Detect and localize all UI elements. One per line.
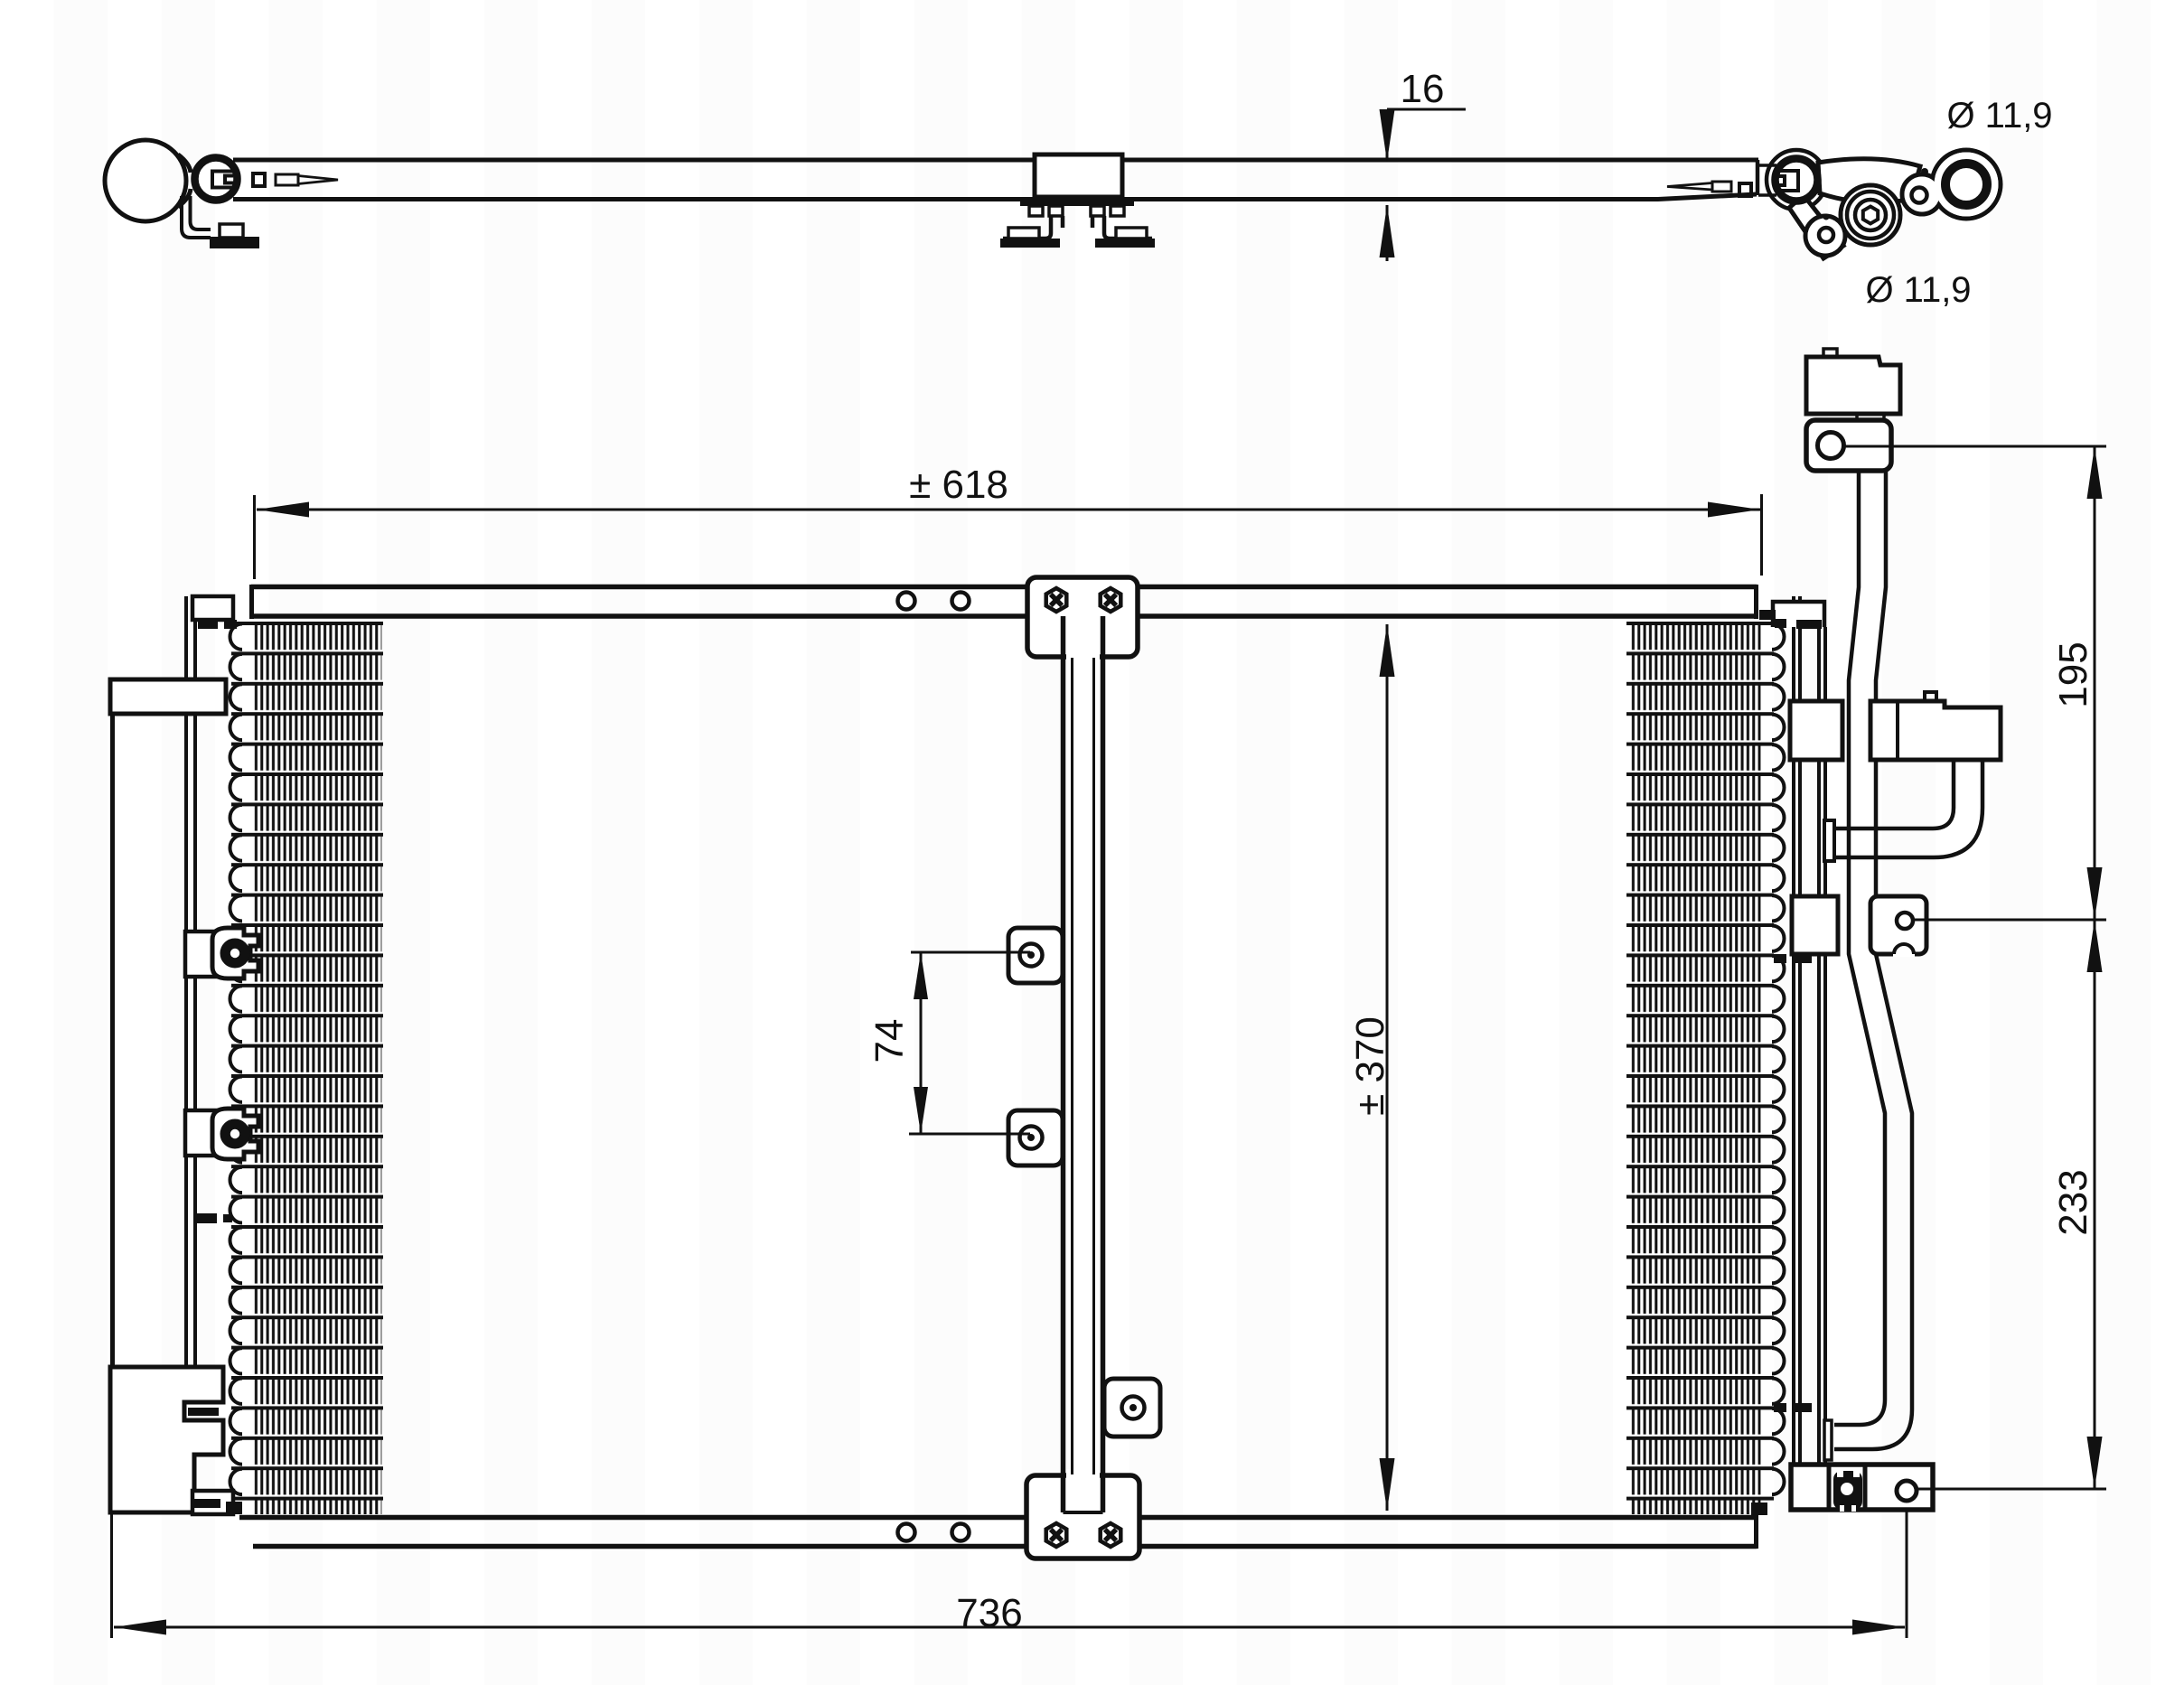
svg-text:± 370: ± 370 — [1348, 1016, 1392, 1116]
svg-text:Ø 11,9: Ø 11,9 — [1865, 270, 1971, 310]
svg-text:74: 74 — [867, 1019, 912, 1063]
svg-text:16: 16 — [1401, 67, 1445, 111]
svg-text:736: 736 — [956, 1591, 1022, 1635]
svg-text:233: 233 — [2051, 1169, 2095, 1235]
svg-text:Ø 11,9: Ø 11,9 — [1946, 96, 2052, 136]
svg-text:± 618: ± 618 — [909, 463, 1008, 507]
svg-text:195: 195 — [2051, 641, 2095, 707]
